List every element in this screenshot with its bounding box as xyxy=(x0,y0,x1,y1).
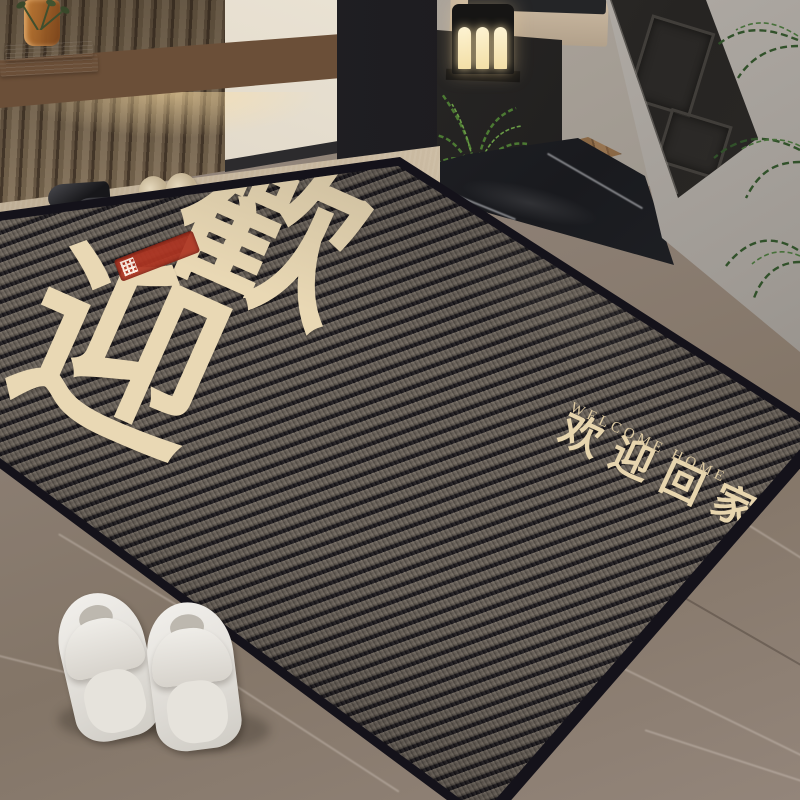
slipper-strap xyxy=(147,623,233,688)
palm-plant xyxy=(688,0,800,300)
plant-stems xyxy=(0,0,90,30)
lantern-lamp xyxy=(452,4,514,74)
slipper-insole xyxy=(164,677,231,746)
lamp-glow-window xyxy=(476,27,489,69)
lamp-glow-window xyxy=(494,27,507,69)
entryway-scene: 歡 迎 欢迎回家 WELCOME HOME xyxy=(0,0,800,800)
lamp-glow-window xyxy=(458,27,471,69)
floor-vein xyxy=(645,729,800,793)
